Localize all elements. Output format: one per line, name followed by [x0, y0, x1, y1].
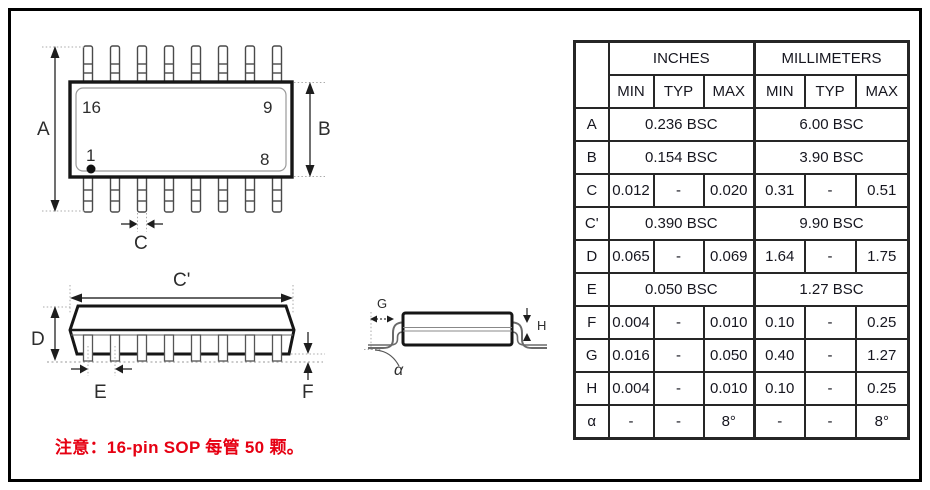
table-row: D0.065-0.0691.64-1.75 — [575, 240, 909, 273]
dim-label-cell: A — [575, 108, 609, 141]
package-outline-page: 16 9 1 8 A B C — [0, 0, 930, 490]
dim-table-body: A0.236 BSC6.00 BSCB0.154 BSC3.90 BSCC0.0… — [575, 108, 909, 439]
value-cell: 0.010 — [704, 306, 755, 339]
dim-label-e: E — [94, 382, 107, 402]
value-cell: 0.154 BSC — [609, 141, 755, 174]
value-cell: - — [654, 240, 704, 273]
side-view-drawing: C' D — [25, 262, 345, 402]
dim-label-d: D — [31, 329, 45, 350]
top-pins — [84, 46, 282, 84]
package-note: 注意：16-pin SOP 每管 50 颗。 — [55, 433, 304, 458]
value-cell: - — [609, 405, 654, 439]
dim-label-cell: G — [575, 339, 609, 372]
value-cell: 0.016 — [609, 339, 654, 372]
col-header-min-in: MIN — [609, 75, 654, 108]
value-cell: 0.012 — [609, 174, 654, 207]
table-row: G0.016-0.0500.40-1.27 — [575, 339, 909, 372]
dimension-table: INCHES MILLIMETERS MIN TYP MAX MIN TYP M… — [573, 40, 910, 440]
value-cell: 0.236 BSC — [609, 108, 755, 141]
corner-cell — [575, 42, 609, 109]
col-header-typ-in: TYP — [654, 75, 704, 108]
sub-header-row: MIN TYP MAX MIN TYP MAX — [575, 75, 909, 108]
dim-label-cell: B — [575, 141, 609, 174]
table-row: F0.004-0.0100.10-0.25 — [575, 306, 909, 339]
dim-label-b: B — [318, 119, 331, 140]
value-cell: - — [654, 405, 704, 439]
table-row: E0.050 BSC1.27 BSC — [575, 273, 909, 306]
value-cell: - — [755, 405, 805, 439]
col-header-typ-mm: TYP — [805, 75, 856, 108]
pin-number-1: 1 — [86, 146, 95, 165]
top-view-drawing: 16 9 1 8 A B C — [22, 34, 362, 254]
pin1-dot — [87, 165, 96, 174]
bottom-pins — [84, 175, 282, 212]
value-cell: - — [805, 240, 856, 273]
package-body-top-view — [70, 82, 292, 177]
value-cell: 1.64 — [755, 240, 805, 273]
value-cell: 8° — [856, 405, 909, 439]
dim-label-cell: H — [575, 372, 609, 405]
value-cell: 0.31 — [755, 174, 805, 207]
value-cell: 0.390 BSC — [609, 207, 755, 240]
dim-label-c-prime: C' — [173, 270, 190, 291]
col-header-min-mm: MIN — [755, 75, 805, 108]
dim-label-cell: D — [575, 240, 609, 273]
value-cell: - — [805, 306, 856, 339]
pin-number-8: 8 — [260, 150, 269, 169]
left-lead — [364, 323, 403, 350]
dim-h-lines — [523, 308, 531, 341]
value-cell: 0.25 — [856, 306, 909, 339]
value-cell: 0.065 — [609, 240, 654, 273]
pin-number-9: 9 — [263, 98, 272, 117]
pin-number-16: 16 — [82, 98, 101, 117]
value-cell: 8° — [704, 405, 755, 439]
value-cell: 0.004 — [609, 306, 654, 339]
table-row: H0.004-0.0100.10-0.25 — [575, 372, 909, 405]
dim-label-a: A — [37, 119, 50, 140]
value-cell: - — [805, 372, 856, 405]
table-row: C'0.390 BSC9.90 BSC — [575, 207, 909, 240]
value-cell: - — [805, 405, 856, 439]
value-cell: - — [654, 372, 704, 405]
inches-header: INCHES — [609, 42, 755, 76]
value-cell: 1.27 BSC — [755, 273, 909, 306]
value-cell: 0.069 — [704, 240, 755, 273]
dim-label-cell: α — [575, 405, 609, 439]
dim-label-h: H — [537, 318, 546, 333]
value-cell: 1.27 — [856, 339, 909, 372]
value-cell: - — [805, 339, 856, 372]
dim-d-lines — [43, 306, 71, 361]
millimeters-header: MILLIMETERS — [755, 42, 909, 76]
dim-label-cell: C' — [575, 207, 609, 240]
value-cell: 0.10 — [755, 306, 805, 339]
col-header-max-in: MAX — [704, 75, 755, 108]
value-cell: - — [654, 174, 704, 207]
value-cell: 1.75 — [856, 240, 909, 273]
dim-label-alpha: α — [394, 362, 404, 379]
package-body-end-view — [403, 313, 512, 345]
dim-label-cell: C — [575, 174, 609, 207]
value-cell: 0.10 — [755, 372, 805, 405]
dim-label-cell: E — [575, 273, 609, 306]
unit-header-row: INCHES MILLIMETERS — [575, 42, 909, 76]
value-cell: - — [654, 339, 704, 372]
value-cell: 0.020 — [704, 174, 755, 207]
value-cell: - — [805, 174, 856, 207]
value-cell: 6.00 BSC — [755, 108, 909, 141]
value-cell: 0.51 — [856, 174, 909, 207]
value-cell: 0.010 — [704, 372, 755, 405]
end-view-drawing: G α H — [363, 288, 558, 393]
dim-label-f: F — [302, 382, 314, 402]
value-cell: 0.25 — [856, 372, 909, 405]
value-cell: 0.004 — [609, 372, 654, 405]
dim-label-c: C — [134, 233, 148, 254]
value-cell: - — [654, 306, 704, 339]
dim-c-lines — [121, 213, 163, 232]
value-cell: 0.050 — [704, 339, 755, 372]
dim-f-lines — [291, 332, 325, 380]
table-row: A0.236 BSC6.00 BSC — [575, 108, 909, 141]
value-cell: 3.90 BSC — [755, 141, 909, 174]
col-header-max-mm: MAX — [856, 75, 909, 108]
table-row: B0.154 BSC3.90 BSC — [575, 141, 909, 174]
dim-label-cell: F — [575, 306, 609, 339]
table-row: C0.012-0.0200.31-0.51 — [575, 174, 909, 207]
value-cell: 0.40 — [755, 339, 805, 372]
dim-label-g: G — [377, 296, 387, 311]
value-cell: 0.050 BSC — [609, 273, 755, 306]
value-cell: 9.90 BSC — [755, 207, 909, 240]
table-row: α--8°--8° — [575, 405, 909, 439]
